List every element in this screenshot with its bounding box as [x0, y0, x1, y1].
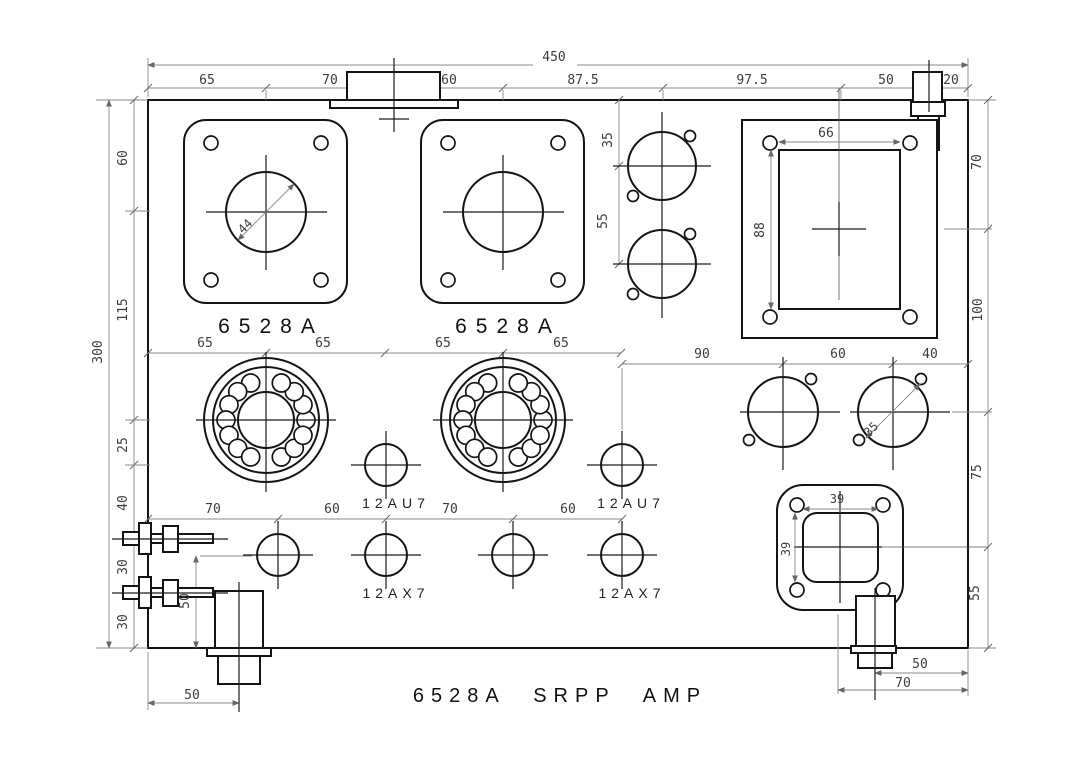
drawing-title: 6528A SRPP AMP: [413, 685, 707, 707]
driver-tube-label-left: 12AU7: [362, 495, 430, 511]
dim-bottom-left-h: 50: [184, 688, 200, 703]
dim-left-seg: 60: [116, 150, 131, 166]
dim-top-seg: 20: [943, 73, 959, 88]
dim-bottom-left-v: 50: [178, 593, 193, 609]
dim-total-width: 450: [542, 50, 565, 65]
input-tube-label-right: 12AX7: [598, 585, 665, 601]
drawing-page: 450 65 70 60 87.5 97.5 50 20 300 60 115 …: [0, 0, 1080, 763]
dim-left-seg: 40: [116, 495, 131, 511]
transformer-cutout: [742, 88, 937, 338]
dim-right-circles: 60: [830, 347, 846, 362]
terminal-bottom-right: [851, 588, 896, 700]
dim-iec-height: 39: [779, 542, 793, 556]
dim-top-circle: 55: [596, 213, 611, 229]
dim-preamp-row: 60: [560, 502, 576, 517]
dim-socket-row: 65: [315, 336, 331, 351]
dim-left-seg: 115: [116, 298, 131, 321]
dim-cutout-height: 88: [753, 222, 768, 238]
dim-preamp-row: 60: [324, 502, 340, 517]
dim-total-height: 300: [91, 340, 106, 363]
dim-left-seg: 30: [116, 559, 131, 575]
chassis-drawing: 450 65 70 60 87.5 97.5 50 20 300 60 115 …: [0, 0, 1080, 763]
dim-top-seg: 87.5: [567, 73, 598, 88]
dim-top-seg: 65: [199, 73, 215, 88]
power-tube-label-left: 6528A: [218, 315, 324, 338]
dim-left-seg: 25: [116, 437, 131, 453]
dim-right-seg: 55: [968, 585, 983, 601]
dim-left-seg: 30: [116, 614, 131, 630]
dim-top-seg: 97.5: [736, 73, 767, 88]
left-dim-labels: 300 60 115 25 40 30 30: [91, 150, 131, 630]
dim-right-seg: 100: [971, 298, 986, 321]
dim-top-circle: 35: [601, 132, 616, 148]
power-inlet-bottom-left: [207, 582, 271, 712]
bottom-right-labels: 50 70: [895, 657, 928, 691]
power-tube-label-right: 6528A: [455, 315, 561, 338]
dim-right-seg: 75: [970, 464, 985, 480]
dim-socket-row: 65: [553, 336, 569, 351]
dim-top-seg: 60: [441, 73, 457, 88]
input-tube-label-left: 12AX7: [362, 585, 429, 601]
dim-right-circles: 40: [922, 347, 938, 362]
dim-preamp-row: 70: [442, 502, 458, 517]
driver-tube-label-right: 12AU7: [597, 495, 665, 511]
dim-iec-width: 39: [830, 492, 844, 506]
dim-preamp-row: 70: [205, 502, 221, 517]
dim-top-seg: 70: [322, 73, 338, 88]
right-dim-labels: 70 100 75 55: [968, 154, 986, 601]
dim-right-seg: 70: [970, 154, 985, 170]
dim-right-circles: 90: [694, 347, 710, 362]
dim-top-seg: 50: [878, 73, 894, 88]
top-dim-labels: 450 65 70 60 87.5 97.5 50 20: [199, 50, 959, 88]
tube-plate-right: [421, 120, 584, 303]
dim-bottom-right: 50: [912, 657, 928, 672]
dim-socket-row: 65: [435, 336, 451, 351]
dim-socket-row: 65: [197, 336, 213, 351]
dim-bottom-right: 70: [895, 676, 911, 691]
tube-plate-left: [184, 120, 347, 303]
dim-cutout-width: 66: [818, 126, 834, 141]
